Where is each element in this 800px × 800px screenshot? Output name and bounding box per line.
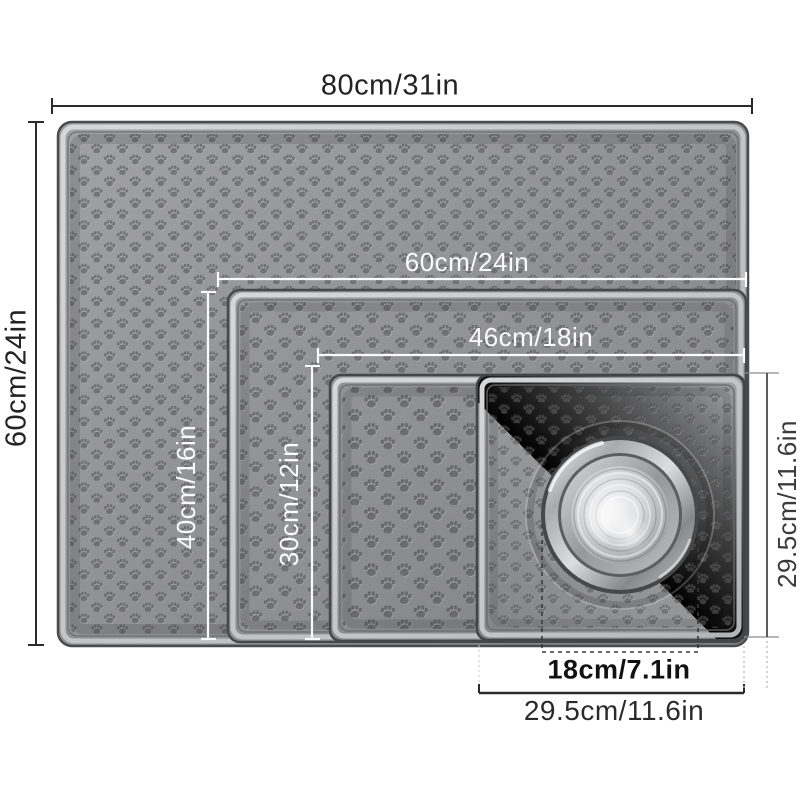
- dimension-label-overall-width: 80cm/31in: [321, 72, 459, 101]
- small-mat-width-dimension-line: [479, 684, 744, 693]
- stainless-steel-bowl-icon: [526, 421, 714, 609]
- dimension-label-small-mat-width: 29.5cm/11.6in: [524, 697, 704, 725]
- dimension-label-small-mat-height: 29.5cm/11.6in: [774, 420, 800, 588]
- dimension-label-mat60-height: 40cm/16in: [173, 425, 199, 549]
- dimension-label-overall-height: 60cm/24in: [3, 309, 32, 447]
- dimension-label-bowl-diameter: 18cm/7.1in: [547, 657, 690, 684]
- dimension-label-mat46-width: 46cm/18in: [469, 324, 593, 350]
- dimension-label-mat60-width: 60cm/24in: [405, 249, 529, 275]
- dimension-label-mat46-height: 30cm/12in: [276, 442, 302, 566]
- product-dimension-diagram: 80cm/31in 60cm/24in 60cm/24in 40cm/16in …: [0, 0, 800, 800]
